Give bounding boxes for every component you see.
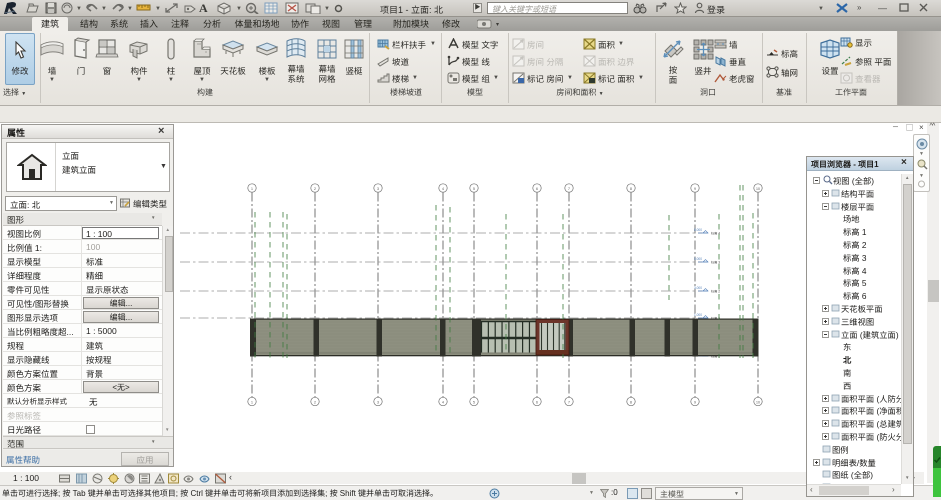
svg-text:10: 10 (756, 401, 760, 405)
svg-text:5: 5 (473, 187, 475, 191)
svg-text:6: 6 (536, 401, 538, 405)
svg-text:3: 3 (377, 187, 379, 191)
svg-text:4: 4 (442, 401, 444, 405)
svg-text:标高 3: 标高 3 (711, 261, 720, 265)
svg-text:1: 1 (251, 401, 253, 405)
svg-text:5.000: 5.000 (694, 257, 702, 261)
svg-text:2: 2 (314, 187, 316, 191)
svg-text:8: 8 (630, 187, 632, 191)
svg-text:7: 7 (568, 187, 570, 191)
svg-text:6: 6 (536, 187, 538, 191)
svg-text:3.000: 3.000 (694, 286, 702, 290)
svg-text:5: 5 (473, 401, 475, 405)
svg-text:7: 7 (568, 401, 570, 405)
svg-text:1.000: 1.000 (694, 313, 702, 317)
svg-text:10: 10 (756, 187, 760, 191)
svg-text:2: 2 (314, 401, 316, 405)
svg-text:4: 4 (442, 187, 444, 191)
svg-text:9: 9 (694, 401, 696, 405)
svg-text:标高 2: 标高 2 (711, 290, 720, 294)
svg-text:3: 3 (377, 401, 379, 405)
svg-text:8: 8 (630, 401, 632, 405)
svg-text:9: 9 (694, 187, 696, 191)
svg-text:1: 1 (251, 187, 253, 191)
svg-text:8.000: 8.000 (694, 228, 702, 232)
